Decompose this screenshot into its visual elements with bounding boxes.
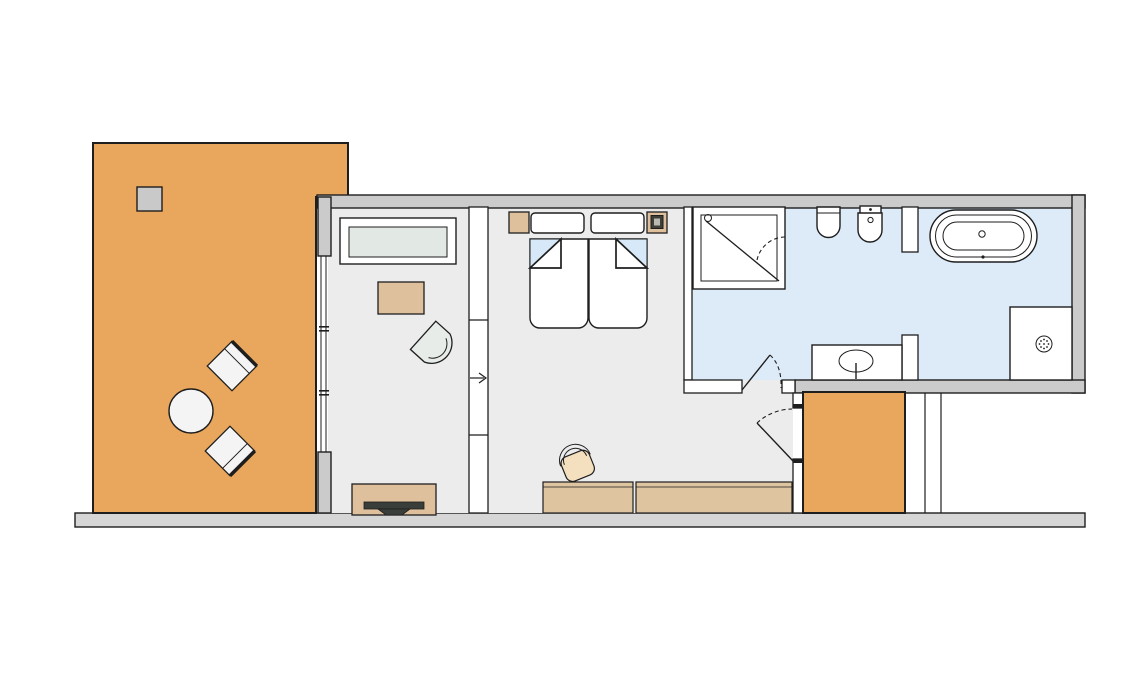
ottoman-icon — [378, 282, 424, 314]
balcony — [803, 392, 941, 513]
shower-icon — [693, 207, 785, 289]
floor-plan-drawing — [0, 0, 1143, 694]
pillow-icon — [531, 213, 584, 233]
bidet-icon — [858, 206, 882, 242]
window-wall — [319, 256, 329, 452]
toilet-icon — [817, 207, 840, 238]
round-table-icon — [169, 389, 213, 433]
nightstand-left-icon — [509, 212, 529, 233]
long-sideboard-icon — [636, 482, 792, 513]
washbasin-icon — [812, 345, 902, 380]
console-desk-icon — [543, 482, 633, 513]
top-wall — [317, 195, 1085, 208]
terrace — [93, 143, 348, 513]
left-wall-stub-bottom — [318, 452, 331, 513]
bedroom-bathroom-wall — [684, 207, 692, 380]
pillow-icon — [591, 213, 644, 233]
bathroom-door-wall-left — [684, 380, 742, 393]
balcony-deck — [803, 392, 905, 513]
walk-in-shower-floor-icon — [1010, 307, 1072, 380]
bathroom-divider-top — [902, 207, 918, 252]
sliding-partition — [469, 207, 488, 513]
bathtub-icon — [930, 210, 1037, 262]
planter-icon — [137, 187, 162, 211]
right-wall — [1072, 195, 1085, 393]
floor-plan-page — [0, 0, 1143, 694]
bedroom-right-wall-bottom — [793, 459, 803, 513]
bathroom-door-wall-right — [782, 380, 795, 393]
sideboard-desk-icon — [340, 218, 456, 264]
bathroom-divider-bottom — [902, 335, 918, 380]
tv-sideboard-icon — [352, 484, 436, 515]
exterior-base-wall — [75, 513, 1085, 527]
left-wall-stub-top — [318, 197, 331, 256]
nightstand-right-icon — [647, 212, 667, 233]
